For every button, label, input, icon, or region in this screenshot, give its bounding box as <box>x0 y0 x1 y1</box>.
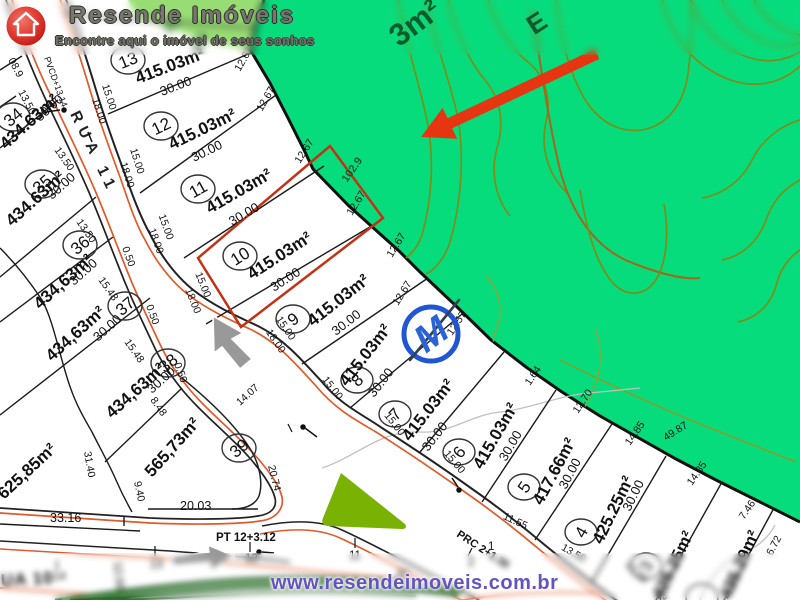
svg-text:33.16: 33.16 <box>50 511 81 525</box>
svg-text:PT 12+3.12: PT 12+3.12 <box>216 532 276 544</box>
svg-text:1: 1 <box>488 541 494 553</box>
svg-text:20.03: 20.03 <box>180 499 211 513</box>
